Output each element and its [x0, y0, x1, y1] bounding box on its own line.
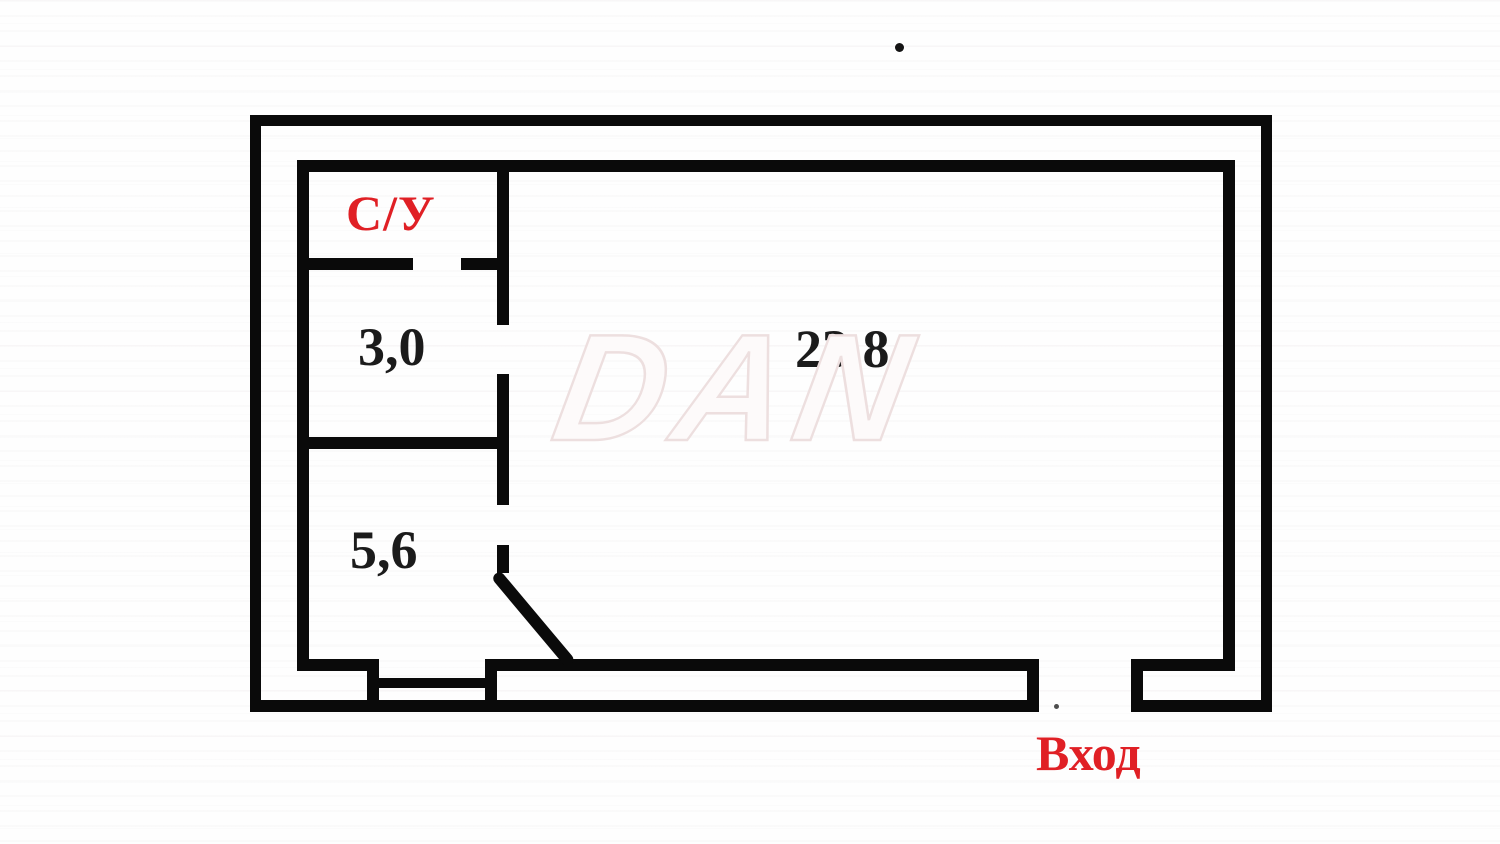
- entrance-label: Вход: [1036, 728, 1141, 778]
- outer-wall-left: [250, 115, 261, 712]
- window-jamb-left: [367, 659, 379, 712]
- outer-wall-top: [250, 115, 1272, 126]
- outer-wall-right: [1261, 115, 1272, 712]
- inner-wall-bottom-right: [1143, 659, 1235, 671]
- bathroom-wall-bottom-left: [297, 258, 413, 270]
- room-label-5-6: 5,6: [350, 523, 418, 577]
- inner-wall-bottom-small-room: [297, 659, 367, 671]
- room-label-bathroom: С/У: [346, 188, 436, 238]
- entrance-jamb-right: [1131, 659, 1143, 712]
- inner-wall-bottom-main: [497, 659, 1032, 671]
- inner-wall-left: [297, 160, 309, 671]
- floor-plan: С/У 3,0 5,6 23,8 Вход DAN: [0, 0, 1500, 844]
- central-wall-low: [497, 545, 509, 573]
- window-sill: [379, 678, 485, 688]
- entrance-jamb-left: [1027, 659, 1039, 712]
- outer-wall-bottom-right: [1131, 700, 1272, 712]
- partition-wall-middle: [297, 437, 509, 449]
- stray-dot-entrance: [1054, 704, 1059, 709]
- room-label-main: 23,8: [795, 322, 890, 376]
- inner-wall-right: [1223, 160, 1235, 671]
- central-wall-mid: [497, 374, 509, 505]
- window-jamb-right: [485, 659, 497, 712]
- stray-dot-top: [895, 43, 904, 52]
- door-leaf: [491, 570, 576, 668]
- inner-wall-top: [297, 160, 1235, 172]
- room-label-3-0: 3,0: [358, 320, 426, 374]
- central-wall-top: [497, 160, 509, 325]
